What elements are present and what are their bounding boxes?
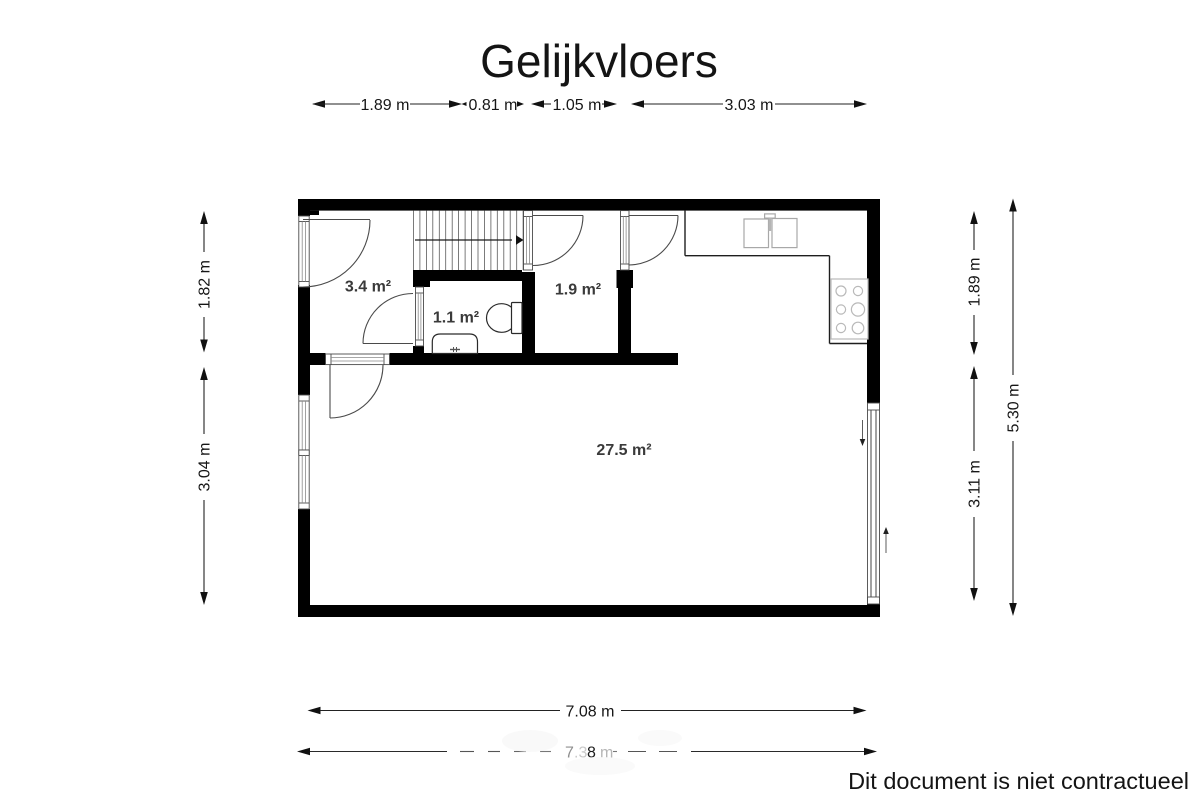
svg-text:0.81 m: 0.81 m — [469, 97, 518, 114]
svg-text:3.03 m: 3.03 m — [725, 97, 774, 114]
svg-text:7.08 m: 7.08 m — [566, 704, 615, 721]
svg-text:1.05 m: 1.05 m — [553, 97, 602, 114]
svg-text:1.9 m²: 1.9 m² — [555, 282, 601, 299]
svg-text:3.11 m: 3.11 m — [967, 460, 984, 508]
svg-text:1.1 m²: 1.1 m² — [433, 310, 479, 327]
svg-text:1.89 m: 1.89 m — [967, 258, 984, 307]
svg-text:Gelijkvloers: Gelijkvloers — [480, 35, 718, 87]
svg-text:3.4 m²: 3.4 m² — [345, 279, 391, 296]
svg-text:Dit document is niet contractu: Dit document is niet contractueel — [848, 768, 1189, 794]
svg-text:3.04 m: 3.04 m — [197, 443, 214, 492]
svg-text:7: 7 — [565, 745, 574, 762]
svg-text:5.30 m: 5.30 m — [1006, 384, 1023, 433]
svg-text:1.89 m: 1.89 m — [361, 97, 410, 114]
svg-text:1.82 m: 1.82 m — [197, 260, 214, 309]
svg-text:27.5 m²: 27.5 m² — [596, 442, 651, 459]
